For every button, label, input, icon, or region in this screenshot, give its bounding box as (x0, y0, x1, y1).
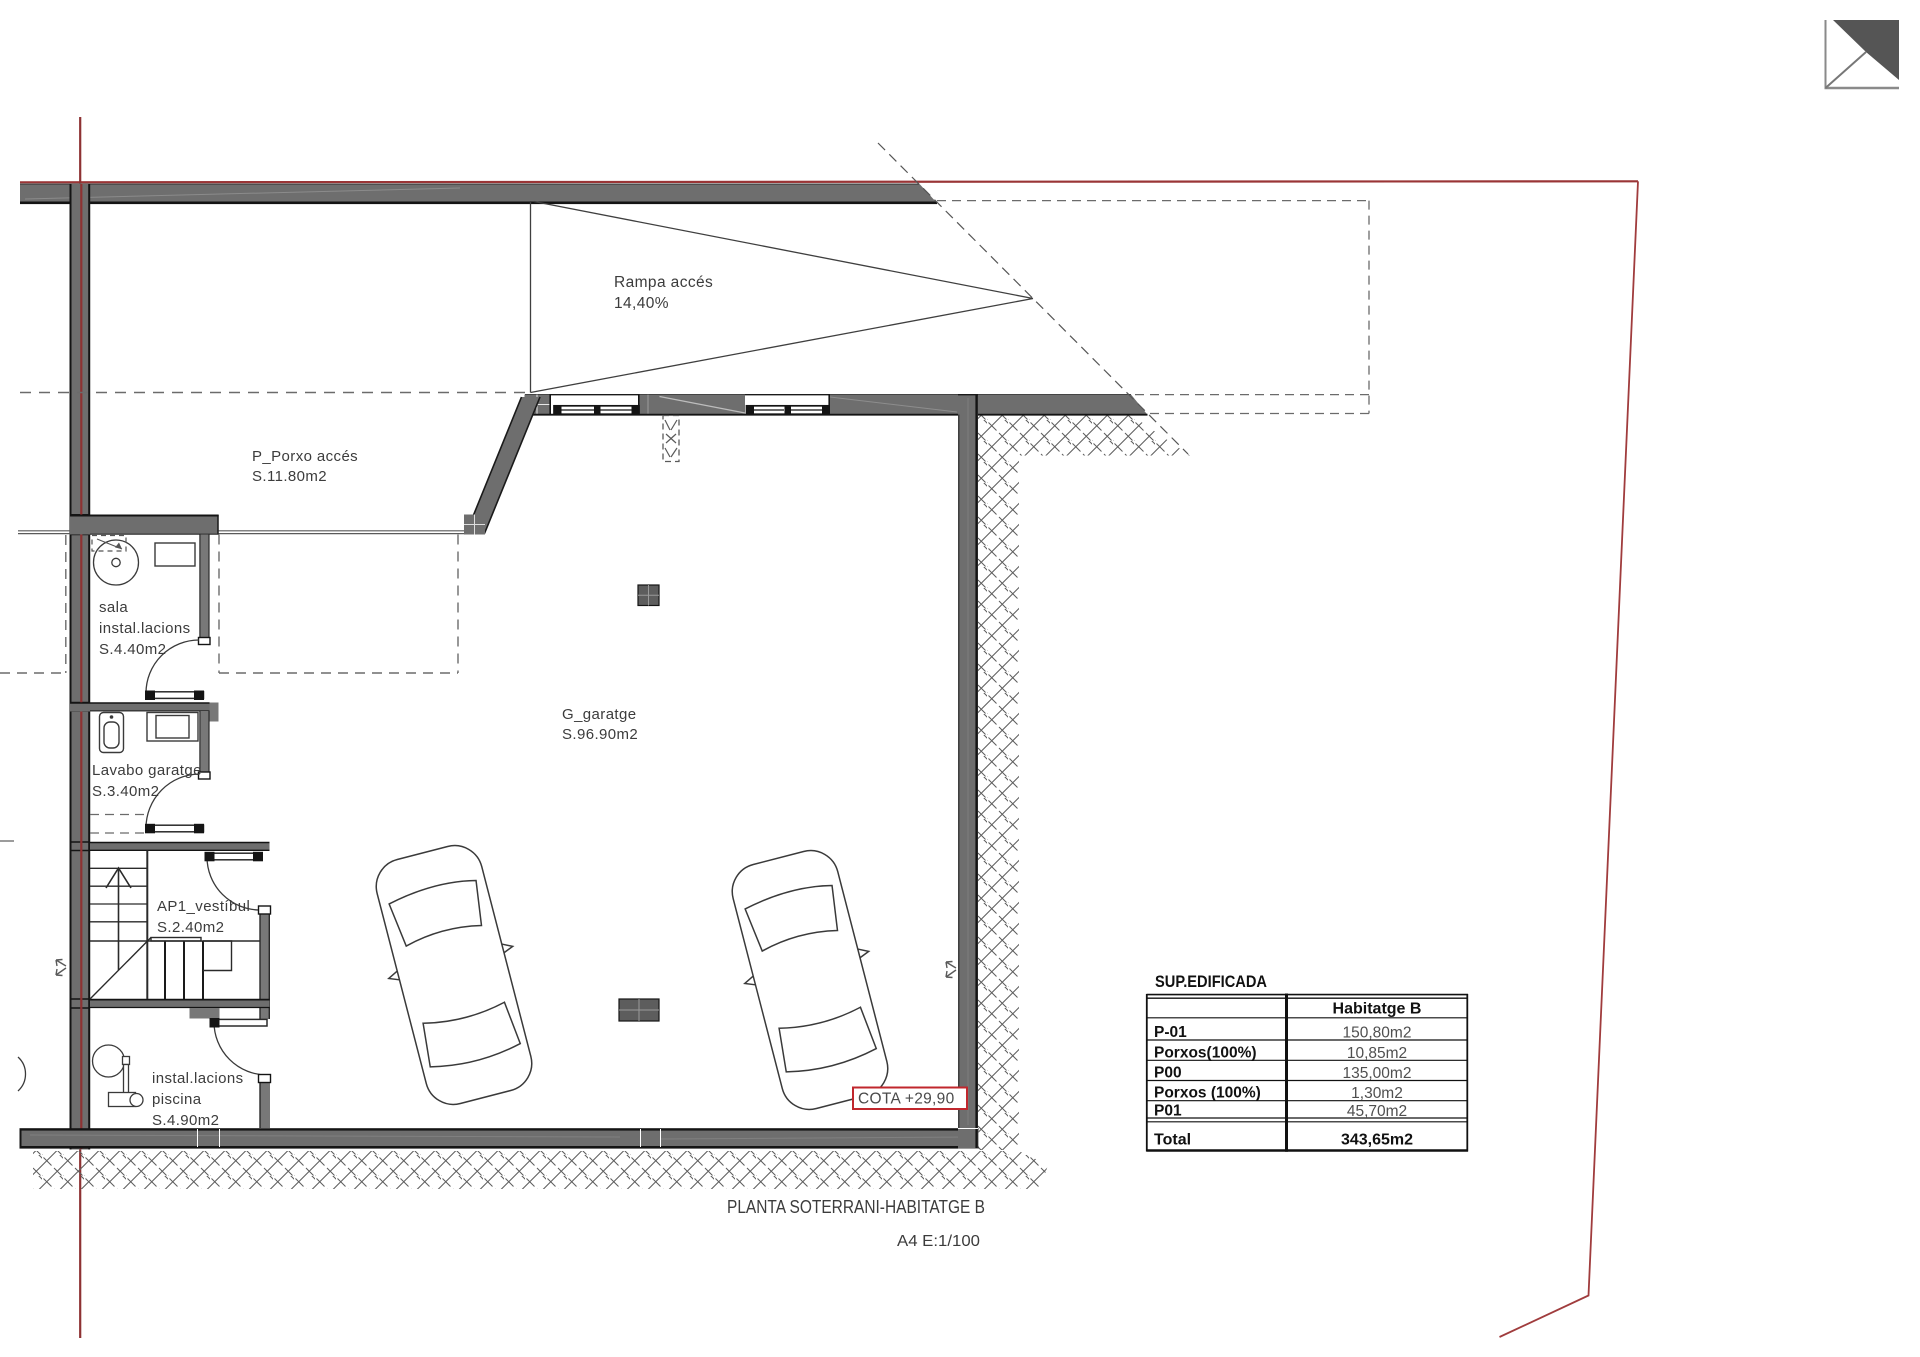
svg-text:P-01: P-01 (1154, 1024, 1187, 1041)
svg-text:343,65m2: 343,65m2 (1341, 1132, 1413, 1149)
svg-text:S.96.90m2: S.96.90m2 (562, 726, 638, 743)
svg-text:piscina: piscina (152, 1091, 202, 1108)
svg-text:10,85m2: 10,85m2 (1347, 1045, 1407, 1062)
svg-text:P00: P00 (1154, 1065, 1182, 1082)
svg-text:Habitatge B: Habitatge B (1333, 1001, 1422, 1018)
svg-text:SUP.EDIFICADA: SUP.EDIFICADA (1155, 972, 1267, 991)
svg-text:S.3.40m2: S.3.40m2 (92, 783, 159, 800)
svg-text:Total: Total (1154, 1132, 1191, 1149)
svg-text:Porxos (100%): Porxos (100%) (1154, 1085, 1261, 1102)
svg-text:150,80m2: 150,80m2 (1343, 1025, 1412, 1042)
svg-text:PLANTA SOTERRANI-HABITATGE B: PLANTA SOTERRANI-HABITATGE B (727, 1197, 985, 1217)
svg-text:S.4.90m2: S.4.90m2 (152, 1112, 219, 1129)
svg-text:P01: P01 (1154, 1103, 1182, 1120)
svg-text:14,40%: 14,40% (614, 295, 669, 312)
svg-text:S.11.80m2: S.11.80m2 (252, 468, 327, 485)
svg-text:45,70m2: 45,70m2 (1347, 1103, 1407, 1120)
svg-text:instal.lacions: instal.lacions (152, 1070, 243, 1087)
svg-text:COTA +29,90: COTA +29,90 (858, 1091, 955, 1108)
svg-text:A4 E:1/100: A4 E:1/100 (897, 1233, 980, 1250)
svg-text:1,30m2: 1,30m2 (1351, 1085, 1403, 1102)
svg-text:Rampa accés: Rampa accés (614, 274, 713, 291)
svg-text:S.4.40m2: S.4.40m2 (99, 641, 166, 658)
svg-text:G_garatge: G_garatge (562, 706, 636, 723)
svg-text:P_Porxo accés: P_Porxo accés (252, 448, 358, 465)
svg-text:S.2.40m2: S.2.40m2 (157, 919, 224, 936)
svg-text:sala: sala (99, 599, 128, 616)
svg-text:Porxos(100%): Porxos(100%) (1154, 1045, 1257, 1062)
svg-text:instal.lacions: instal.lacions (99, 620, 190, 637)
svg-text:Lavabo garatge: Lavabo garatge (92, 762, 202, 779)
svg-text:AP1_vestíbul: AP1_vestíbul (157, 898, 250, 915)
svg-text:135,00m2: 135,00m2 (1343, 1065, 1412, 1082)
